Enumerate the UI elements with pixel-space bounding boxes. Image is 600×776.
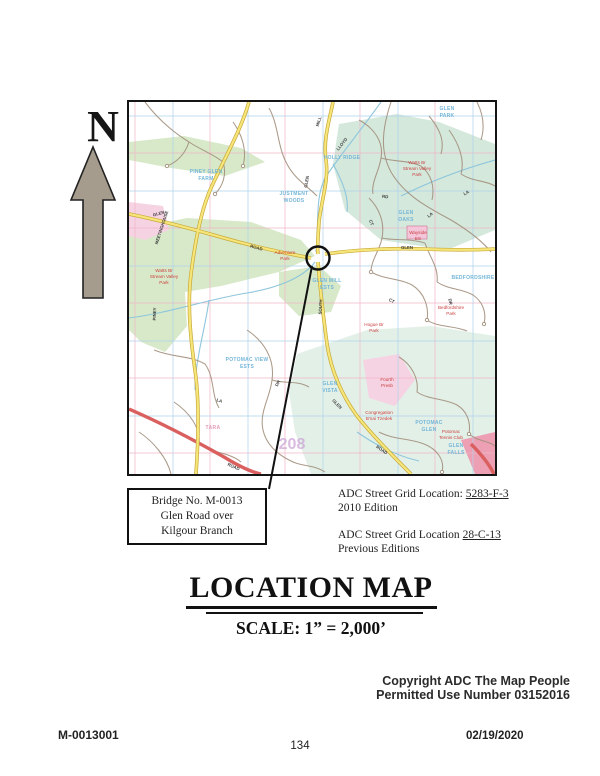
map-label-street: GLEN (303, 175, 310, 188)
map-label-area: HOLLY RIDGE (324, 155, 361, 161)
map-label-poi: Park (446, 311, 456, 316)
map-label-poi: Watts Br (408, 160, 426, 165)
street-map-svg: MEETINGHOUSEPINEYGLENROADGLENMILLSOUTHGL… (129, 102, 495, 474)
map-label-street: MILL (315, 116, 323, 127)
callout-line1: Bridge No. M-0013 (129, 494, 265, 509)
copyright-line2: Permitted Use Number 03152016 (376, 688, 570, 702)
map-label-street: PINEY (152, 307, 157, 320)
adc-grid-references: ADC Street Grid Location: 5283-F-3 2010 … (338, 487, 568, 556)
map-label-area: OAKS (398, 217, 414, 223)
adc-current-location: ADC Street Grid Location: 5283-F-3 (338, 487, 568, 501)
page-title: LOCATION MAP (161, 571, 461, 605)
map-label-poi: Park (369, 328, 379, 333)
map-label-area: POTOMAC (415, 420, 442, 426)
map-label-area: PINEY GLEN (190, 169, 223, 175)
adc-previous-edition: Previous Editions (338, 542, 568, 556)
map-label-area: VISTA (322, 388, 338, 394)
bridge-callout-box: Bridge No. M-0013 Glen Road over Kilgour… (127, 488, 267, 545)
map-label-poi: Presb (381, 383, 393, 388)
map-label-street: ROAD (227, 462, 241, 472)
map-label-poi: Park (412, 172, 422, 177)
map-label-area: GLEN (323, 381, 338, 387)
map-label-poi: Stream Valley (403, 166, 432, 171)
map-scale: SCALE: 1” = 2,000’ (161, 618, 461, 639)
adc-previous-location: ADC Street Grid Location 28-C-13 (338, 528, 568, 542)
report-page: N (0, 0, 600, 776)
map-label-area: FARM (198, 176, 213, 182)
map-label-poi: ES (415, 236, 421, 241)
copyright-line1: Copyright ADC The Map People (376, 674, 570, 688)
north-label: N (87, 102, 119, 151)
map-label-poi: Fourth (380, 377, 394, 382)
map-label-poi: Potomac (442, 429, 461, 434)
map-label-poi: Bedfordshire (438, 305, 464, 310)
map-label-area: ESTS (320, 285, 334, 291)
title-rule-1 (186, 606, 437, 609)
adc-current-edition: 2010 Edition (338, 501, 568, 515)
map-label-num: 208 (279, 436, 306, 453)
map-label-area: WOODS (284, 198, 305, 204)
map-label-poi: Park (159, 280, 169, 285)
adc-previous-code: 28-C-13 (463, 529, 501, 541)
map-label-area: POTOMAC VIEW (226, 357, 269, 363)
map-label-poi: Congregation (365, 410, 393, 415)
adc-current-prefix: ADC Street Grid Location: (338, 488, 466, 500)
north-arrow-shape (71, 147, 115, 298)
footer-date: 02/19/2020 (466, 730, 524, 742)
map-label-pink: TARA (205, 425, 220, 431)
map-label-area: GLEN (449, 443, 464, 449)
map-label-area: JUSTMENT (280, 191, 309, 197)
map-label-area: GLEN (440, 106, 455, 112)
callout-line2: Glen Road over (129, 509, 265, 524)
location-map: MEETINGHOUSEPINEYGLENROADGLENMILLSOUTHGL… (127, 100, 497, 476)
map-label-poi: Park (280, 256, 290, 261)
map-label-street: GLEN (401, 245, 413, 250)
map-label-street: SOUTH (317, 299, 323, 314)
map-label-poi: Tennis Club (439, 435, 463, 440)
map-label-poi: Hogue Br (364, 322, 384, 327)
adc-current-code: 5283-F-3 (466, 488, 509, 500)
map-label-area: ESTS (240, 364, 254, 370)
map-label-area: PARK (440, 113, 455, 119)
map-label-area: GLEN (399, 210, 414, 216)
map-label-poi: Stream Valley (150, 274, 179, 279)
map-label-poi: Watts Br (155, 268, 173, 273)
map-label-area: FALLS (447, 450, 464, 456)
map-label-poi: B'nai Tzedek (366, 416, 393, 421)
map-label-street: RD (382, 194, 389, 200)
map-label-area: GLEN MILL (312, 278, 341, 284)
title-rule-2 (206, 612, 423, 614)
adc-previous-prefix: ADC Street Grid Location (338, 529, 463, 541)
copyright-notice: Copyright ADC The Map People Permitted U… (376, 674, 570, 702)
map-label-poi: Adventure (275, 250, 296, 255)
map-label-area: BEDFORDSHIRE (451, 275, 494, 281)
map-label-area: GLEN (422, 427, 437, 433)
map-label-street: DR (274, 379, 282, 388)
map-label-poi: Wayside (409, 230, 427, 235)
callout-line3: Kilgour Branch (129, 524, 265, 539)
